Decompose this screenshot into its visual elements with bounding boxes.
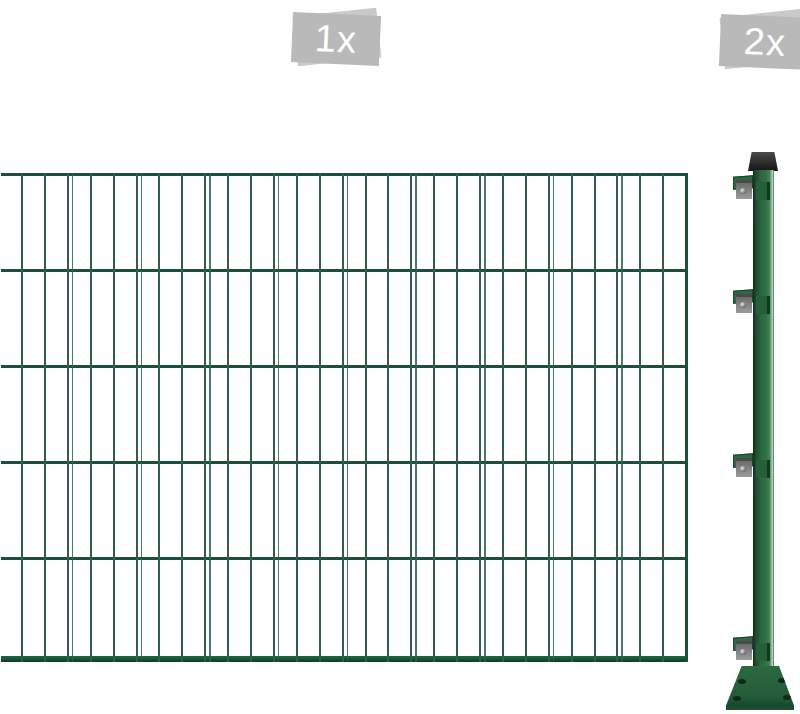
vertical-wire-twin (553, 173, 555, 662)
vertical-wire-twin (484, 173, 486, 662)
bracket-bolt (740, 466, 746, 472)
vertical-wire (273, 173, 275, 662)
badge-front-card: 1x (291, 12, 381, 66)
vertical-wire (113, 173, 115, 662)
vertical-wire (296, 173, 298, 662)
vertical-wire (90, 173, 92, 662)
base-bolt-hole (738, 679, 746, 684)
post-body (753, 170, 774, 668)
bracket-side-block (756, 296, 770, 314)
quantity-label: 1x (314, 19, 358, 59)
base-bolt-hole (778, 678, 786, 683)
vertical-wire-twin (209, 173, 211, 662)
vertical-wire (662, 173, 664, 662)
post-bracket (726, 637, 776, 664)
bracket-bolt (740, 649, 746, 655)
vertical-wire (136, 173, 138, 662)
post-base-plate (726, 666, 794, 710)
vertical-wire (21, 173, 23, 662)
fence-panel (1, 173, 687, 662)
vertical-wire (456, 173, 458, 662)
vertical-wire (158, 173, 160, 662)
vertical-wire (639, 173, 641, 662)
horizontal-wire (1, 656, 687, 662)
base-bolt-hole (733, 696, 741, 701)
quantity-label: 2x (743, 22, 787, 62)
vertical-wire (410, 173, 412, 662)
vertical-wire (571, 173, 573, 662)
quantity-badge-panel: 1x (286, 5, 386, 69)
post-bracket (726, 176, 776, 203)
horizontal-wire (1, 461, 687, 464)
quantity-badge-post: 2x (714, 6, 800, 72)
badge-front-card: 2x (719, 14, 800, 70)
vertical-wire-twin (72, 173, 74, 662)
bracket-bolt (740, 188, 746, 194)
vertical-wire (204, 173, 206, 662)
vertical-wire-twin (415, 173, 417, 662)
vertical-wire (44, 173, 46, 662)
vertical-wire (387, 173, 389, 662)
base-bolt-hole (783, 695, 791, 700)
vertical-wire-twin (141, 173, 143, 662)
vertical-wire-twin (347, 173, 349, 662)
horizontal-wire (1, 173, 687, 176)
horizontal-wire (1, 557, 687, 560)
vertical-wire (342, 173, 344, 662)
product-image: 1x 2x (0, 0, 800, 714)
vertical-wire (181, 173, 183, 662)
vertical-wire (67, 173, 69, 662)
bracket-side-block (756, 460, 770, 478)
vertical-wire-twin (278, 173, 280, 662)
bracket-side-block (756, 643, 770, 661)
post-cap (748, 152, 778, 171)
horizontal-wire (1, 269, 687, 272)
vertical-wire (250, 173, 252, 662)
post-bracket (726, 290, 776, 317)
horizontal-wire (1, 365, 687, 368)
bracket-side-block (756, 182, 770, 200)
fence-post (720, 150, 800, 714)
vertical-wire (502, 173, 504, 662)
vertical-wire (616, 173, 618, 662)
vertical-wire-twin (621, 173, 623, 662)
vertical-wire (548, 173, 550, 662)
vertical-wire (319, 173, 321, 662)
vertical-wire (685, 173, 688, 662)
vertical-wire (594, 173, 596, 662)
vertical-wire (433, 173, 435, 662)
post-bracket (726, 454, 776, 481)
vertical-wire (227, 173, 229, 662)
bracket-bolt (740, 302, 746, 308)
vertical-wire (479, 173, 481, 662)
vertical-wire (365, 173, 367, 662)
vertical-wire (525, 173, 527, 662)
